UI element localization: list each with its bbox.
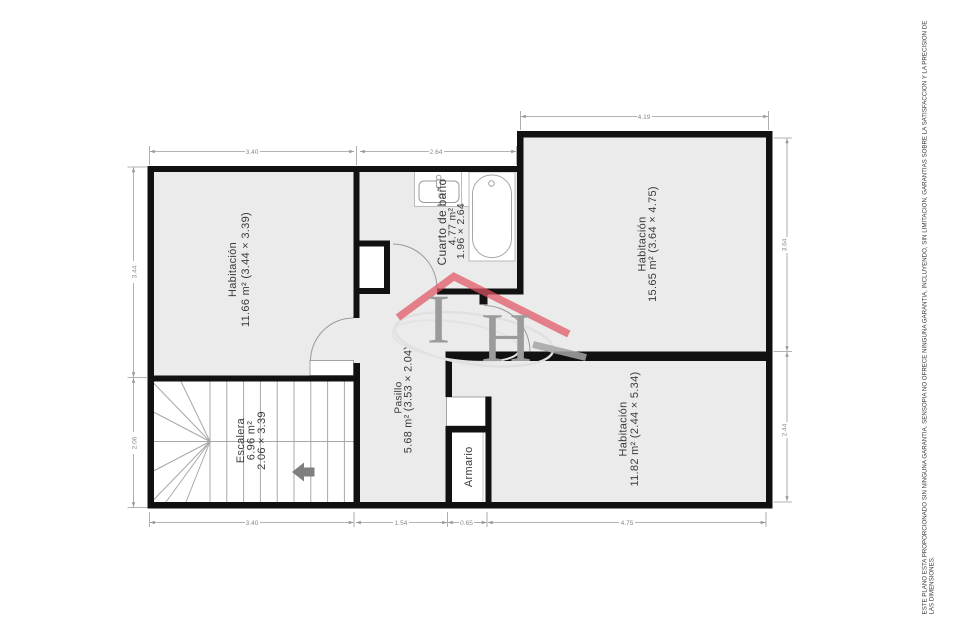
svg-text:I: I xyxy=(427,282,450,359)
svg-text:Habitación: Habitación xyxy=(618,402,630,457)
svg-text:ESTE PLANO ESTA PROPORCIONADO: ESTE PLANO ESTA PROPORCIONADO SIN NINGUN… xyxy=(922,21,929,615)
svg-text:0.65: 0.65 xyxy=(460,520,473,527)
svg-text:3.40: 3.40 xyxy=(246,520,259,527)
svg-text:1.96 × 2.64: 1.96 × 2.64 xyxy=(455,203,467,259)
svg-text:3.64: 3.64 xyxy=(782,238,789,251)
svg-text:Armario: Armario xyxy=(463,446,475,487)
svg-text:Habitación: Habitación xyxy=(227,242,239,297)
svg-text:15.65 m² (3.64 × 4.75): 15.65 m² (3.64 × 4.75) xyxy=(647,186,659,302)
svg-text:2.06: 2.06 xyxy=(132,436,139,449)
svg-text:5.68 m² (3.53 × 2.04): 5.68 m² (3.53 × 2.04) xyxy=(403,346,415,453)
svg-text:LAS DIMENSIONES.: LAS DIMENSIONES. xyxy=(929,556,936,614)
svg-text:3.44: 3.44 xyxy=(132,265,139,278)
svg-text:11.82 m² (2.44 × 5.34): 11.82 m² (2.44 × 5.34) xyxy=(629,372,641,487)
svg-text:4.75: 4.75 xyxy=(621,520,634,527)
svg-text:2.06 × 3.39: 2.06 × 3.39 xyxy=(256,411,268,470)
svg-text:1.54: 1.54 xyxy=(395,520,408,527)
svg-text:3.40: 3.40 xyxy=(246,149,259,156)
svg-text:11.66 m² (3.44 × 3.39): 11.66 m² (3.44 × 3.39) xyxy=(240,212,252,327)
svg-text:4.19: 4.19 xyxy=(638,114,651,121)
svg-text:2.44: 2.44 xyxy=(782,423,789,436)
svg-text:2.64: 2.64 xyxy=(430,149,443,156)
svg-text:H: H xyxy=(481,300,532,377)
